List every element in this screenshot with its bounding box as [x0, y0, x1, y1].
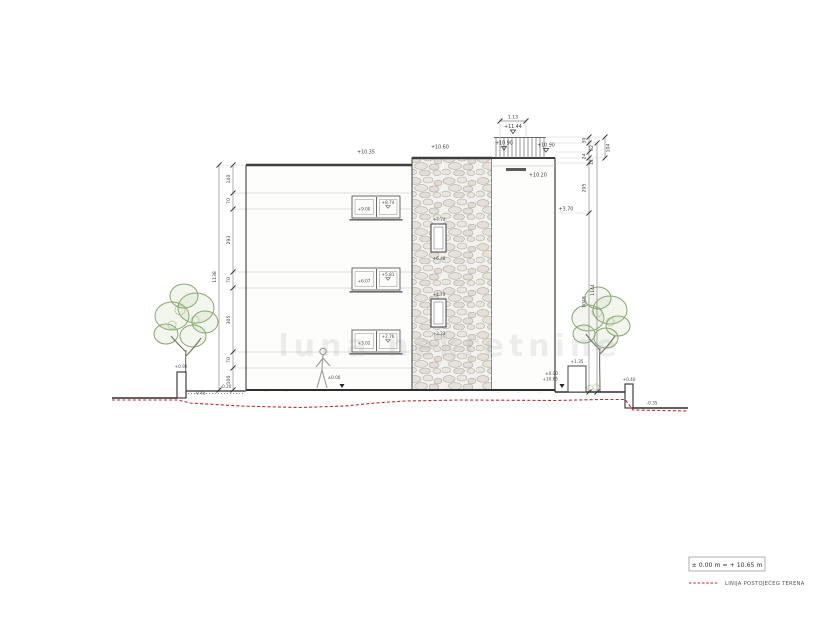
level-label: +10.60	[431, 145, 449, 151]
dim-label: 305	[226, 316, 232, 325]
dim-label: 293	[226, 236, 232, 245]
dim-label: 70	[226, 198, 232, 204]
legend: ± 0.00 m = + 10.65 m LINIJA POSTOJEĆEG T…	[689, 557, 805, 587]
left-dimension-chain: 140 70 293 70 305 70 100 1138	[212, 163, 246, 393]
left-boundary-wall	[177, 372, 186, 398]
dim-label: 62	[589, 145, 595, 151]
dim-label: 1048	[582, 296, 588, 308]
dim-label: 70	[226, 277, 232, 283]
right-terrace-box	[568, 366, 586, 392]
elevation-drawing: +9.00 +8.74 +6.07 +5.81 +3.02 +2.76	[0, 0, 814, 640]
level-label: +4.79	[433, 292, 446, 297]
terrain-line-label: LINIJA POSTOJEĆEG TERENA	[725, 580, 805, 587]
level-label: +10.90	[537, 143, 555, 149]
dim-label: 24	[582, 154, 588, 160]
datum-triangle-icon	[560, 384, 565, 388]
terrace-bench	[506, 168, 526, 171]
stone-window-1	[431, 224, 446, 252]
level-label: -0.45	[195, 391, 206, 396]
stone-window-2	[431, 299, 446, 327]
level-triangle-icon	[510, 130, 515, 134]
level-label: +6.48	[433, 256, 446, 261]
level-label: ±0.00	[545, 371, 558, 376]
level-label: +6.07	[358, 279, 371, 284]
dim-label: 30	[582, 138, 588, 144]
dim-total-label: 1138	[212, 271, 218, 283]
datum-text: ± 0.00 m = + 10.65 m	[692, 562, 763, 569]
level-label: +10.65	[543, 377, 559, 382]
dim-total-label: 1144	[590, 284, 596, 296]
level-label: ±0.00	[328, 375, 341, 380]
level-label: +3.70	[559, 207, 574, 213]
level-label: +11.44	[504, 124, 522, 130]
level-label: +5.81	[382, 272, 395, 277]
dim-label: 295	[582, 184, 588, 193]
dim-label: 14	[589, 159, 595, 165]
dim-label: 100	[226, 376, 232, 385]
dim-label: 140	[226, 175, 232, 184]
level-label: +10.35	[357, 150, 375, 156]
level-label: +7.74	[433, 217, 446, 222]
existing-terrain-line	[112, 400, 688, 412]
level-label: +9.00	[358, 207, 371, 212]
level-label: +10.20	[529, 173, 547, 179]
level-label: +1.35	[571, 359, 584, 364]
level-label: +10.90	[495, 141, 513, 147]
level-label: +0.90	[175, 364, 188, 369]
elevation-drawing-sheet: +9.00 +8.74 +6.07 +5.81 +3.02 +2.76	[0, 0, 814, 640]
dim-label: 1.13	[508, 115, 518, 121]
level-label: +0.40	[623, 377, 636, 382]
level-label: +8.74	[382, 200, 395, 205]
dim-label: 70	[226, 357, 232, 363]
level-label: -0.35	[647, 401, 658, 406]
dim-label: 104	[606, 144, 612, 153]
